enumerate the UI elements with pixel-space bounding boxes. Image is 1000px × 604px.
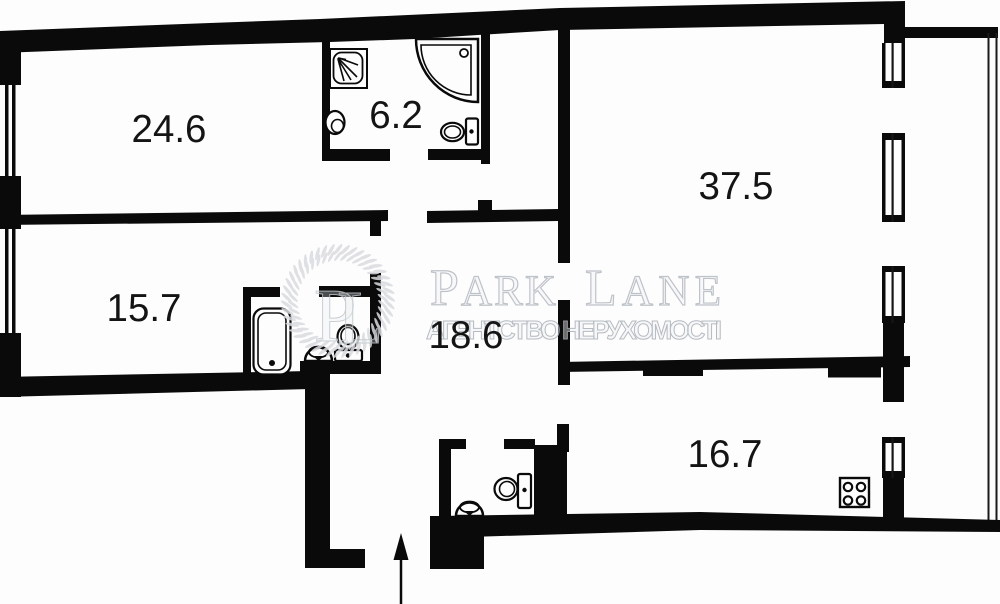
svg-text:16.7: 16.7	[688, 433, 763, 476]
svg-text:24.6: 24.6	[132, 108, 207, 151]
svg-text:L: L	[337, 276, 383, 360]
svg-text:18.6: 18.6	[429, 314, 504, 357]
svg-text:LANE: LANE	[585, 260, 721, 317]
svg-text:37.5: 37.5	[699, 165, 774, 208]
svg-text:6.2: 6.2	[369, 94, 423, 137]
svg-text:15.7: 15.7	[107, 287, 182, 330]
